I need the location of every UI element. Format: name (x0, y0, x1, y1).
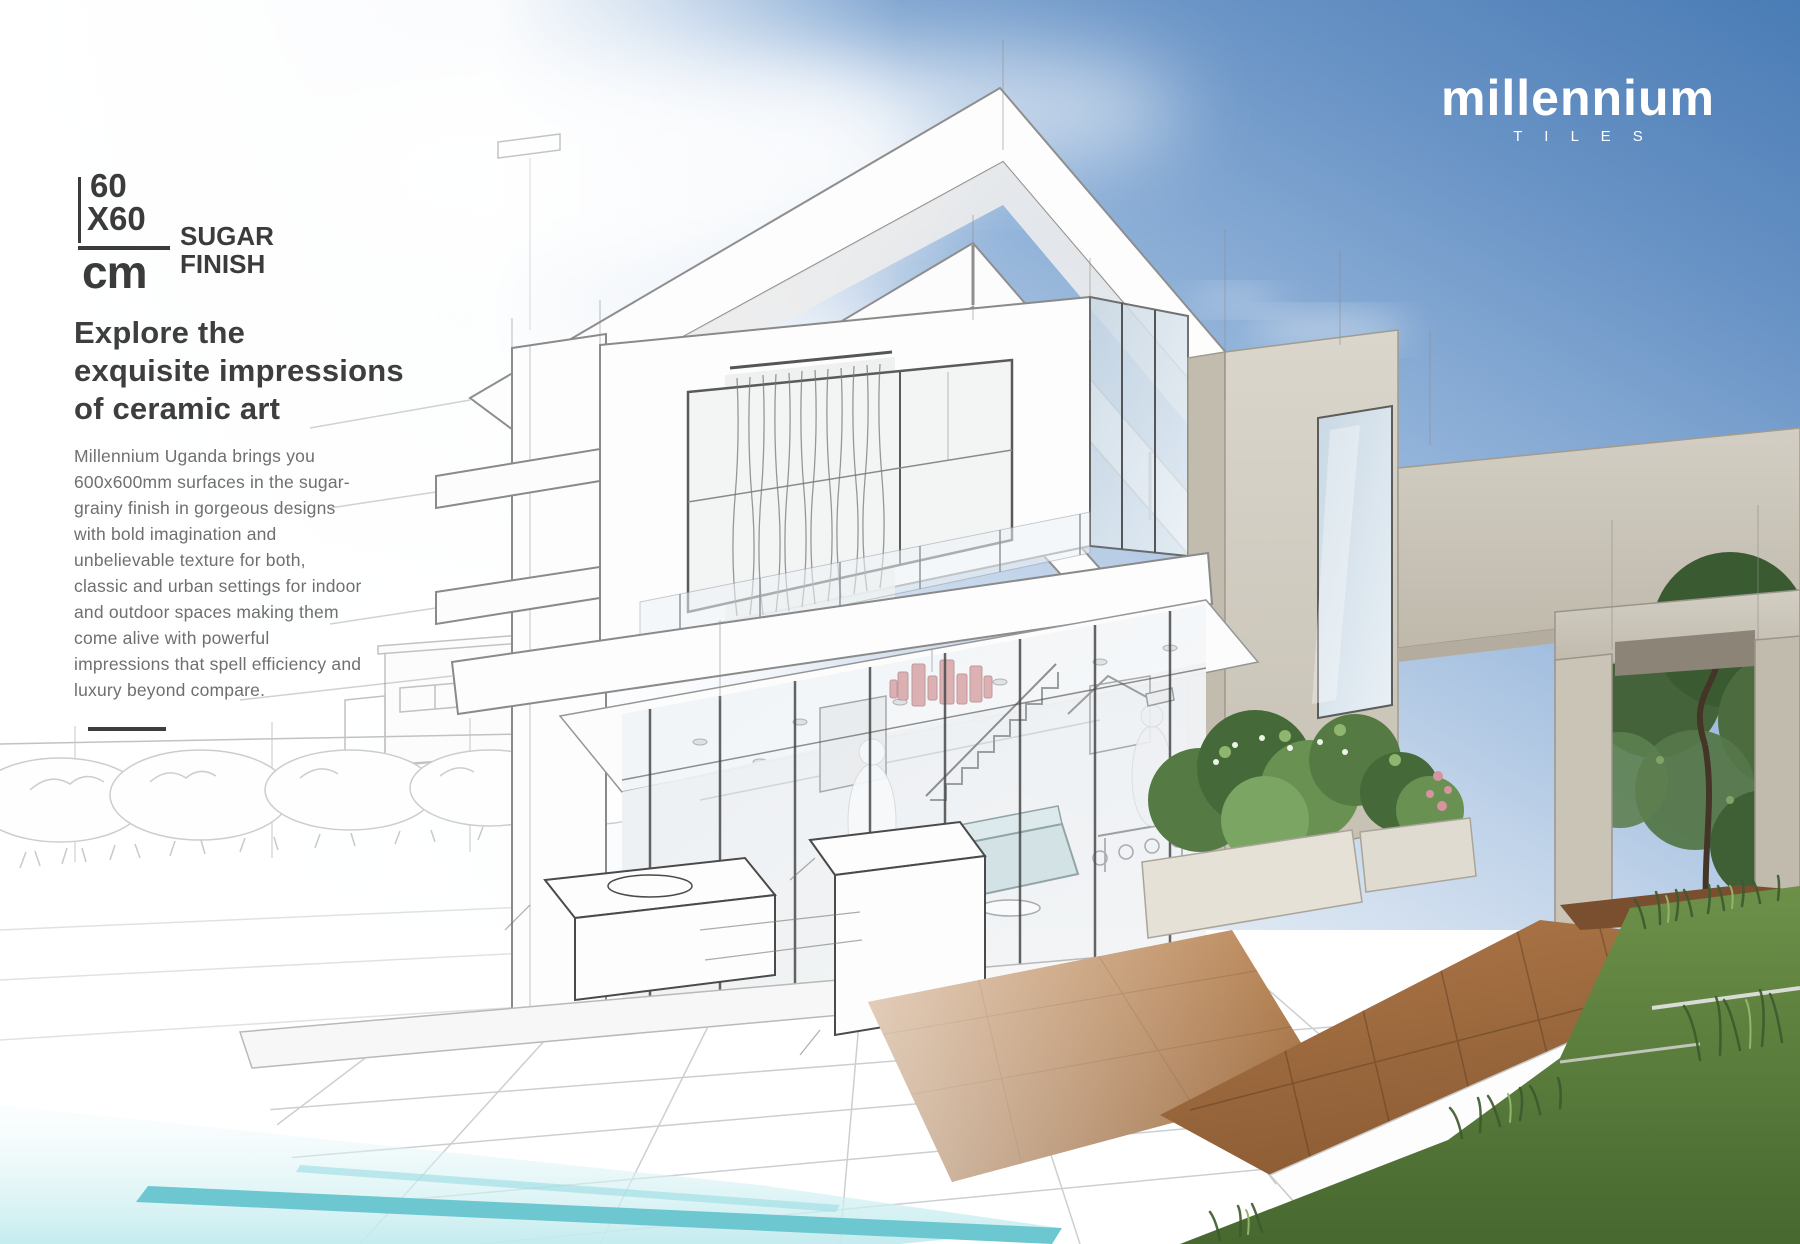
intro-line: impressions that spell efficiency and (74, 651, 362, 677)
headline-line: Explore the (74, 314, 404, 352)
brand-logo-wordmark: millennium (1440, 72, 1716, 124)
intro-line: and outdoor spaces making them (74, 599, 362, 625)
size-badge-unit: cm (82, 252, 146, 292)
brochure-page: millennium T I L E S 60 X60 cm SUGAR FIN… (0, 0, 1800, 1244)
brand-logo: millennium T I L E S (1440, 72, 1716, 145)
size-badge-dimension-top: 60 (90, 169, 127, 203)
page-headline: Explore the exquisite impressions of cer… (74, 314, 404, 428)
intro-line: Millennium Uganda brings you (74, 443, 362, 469)
divider-rule (88, 727, 166, 731)
headline-line: of ceramic art (74, 390, 404, 428)
intro-line: come alive with powerful (74, 625, 362, 651)
intro-paragraph: Millennium Uganda brings you 600x600mm s… (74, 443, 362, 703)
finish-label-top: SUGAR (180, 222, 274, 250)
headline-line: exquisite impressions (74, 352, 404, 390)
intro-line: unbelievable texture for both, (74, 547, 362, 573)
intro-line: 600x600mm surfaces in the sugar- (74, 469, 362, 495)
intro-line: classic and urban settings for indoor (74, 573, 362, 599)
brand-logo-subtitle: T I L E S (1440, 128, 1716, 145)
intro-line: with bold imagination and (74, 521, 362, 547)
size-badge-dimension-bottom: X60 (87, 202, 146, 236)
intro-line: luxury beyond compare. (74, 677, 362, 703)
finish-label-bottom: FINISH (180, 250, 265, 278)
intro-line: grainy finish in gorgeous designs (74, 495, 362, 521)
size-badge-ruler-vertical (78, 177, 81, 243)
